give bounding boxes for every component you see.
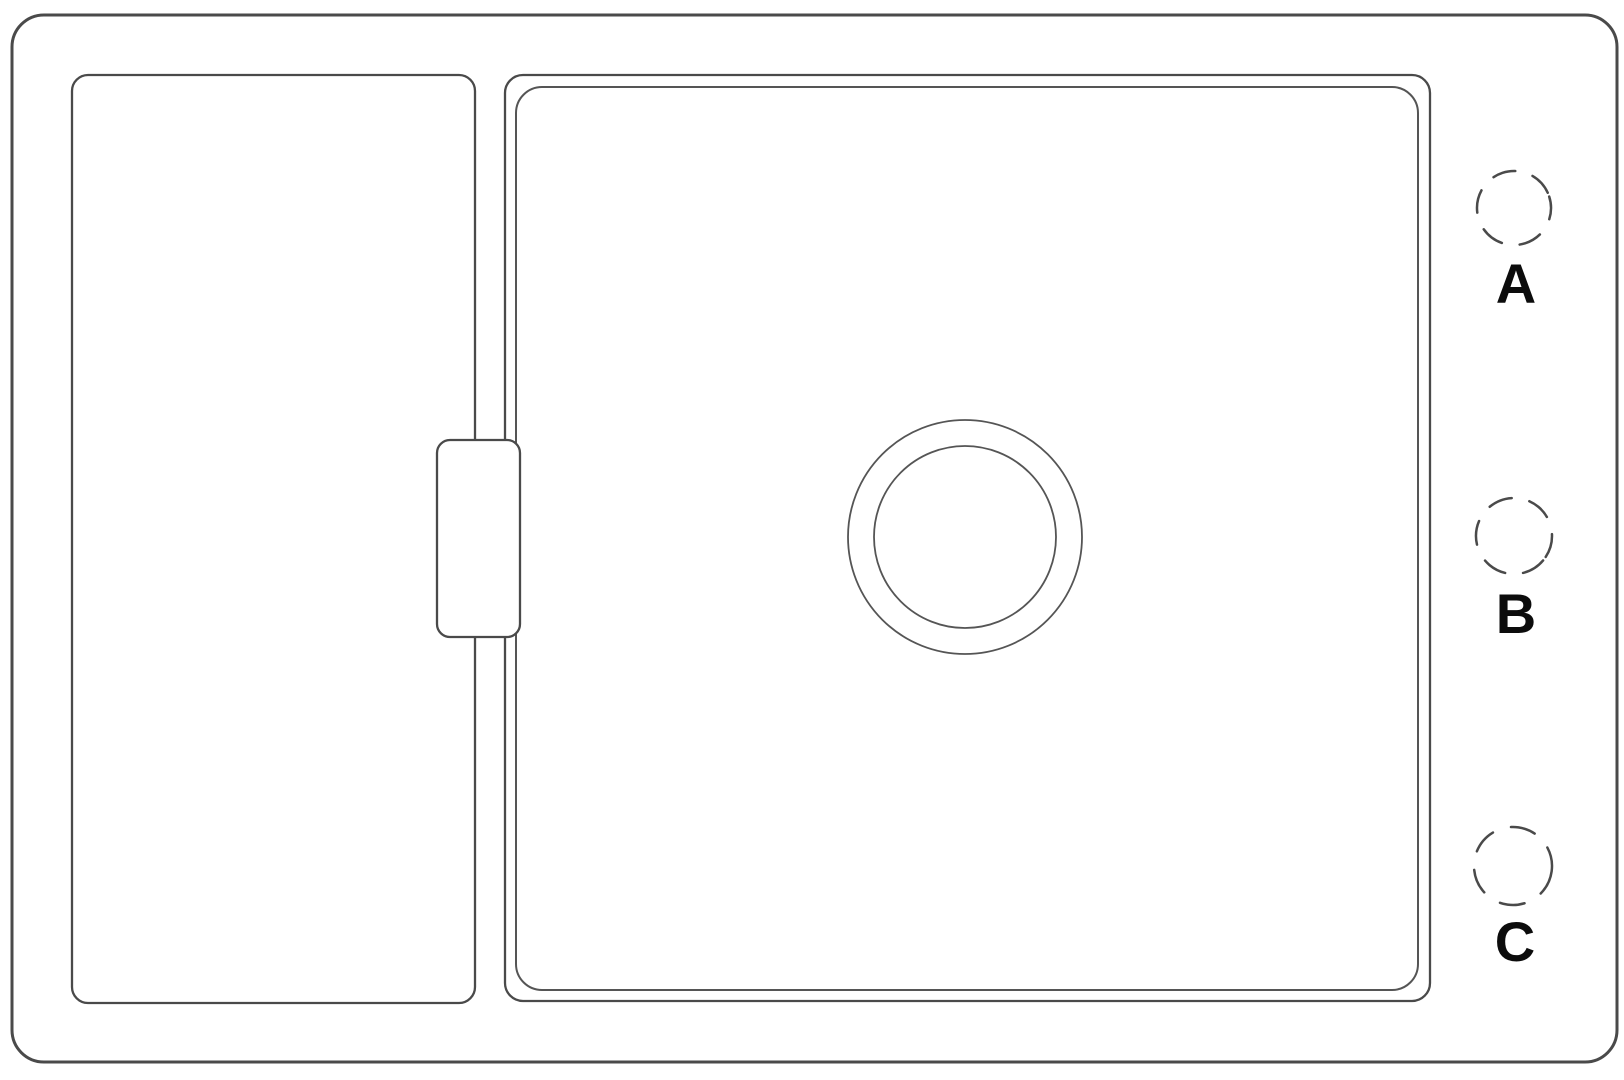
- tap-hole-b-label: B: [1496, 582, 1536, 645]
- sink-plan-technical-drawing: A B C: [0, 0, 1624, 1080]
- drawing-background: [0, 0, 1624, 1080]
- divider-clip: [437, 440, 520, 637]
- tap-hole-a-label: A: [1496, 252, 1536, 315]
- drawing-svg: A B C: [0, 0, 1624, 1080]
- tap-hole-c-label: C: [1495, 910, 1535, 973]
